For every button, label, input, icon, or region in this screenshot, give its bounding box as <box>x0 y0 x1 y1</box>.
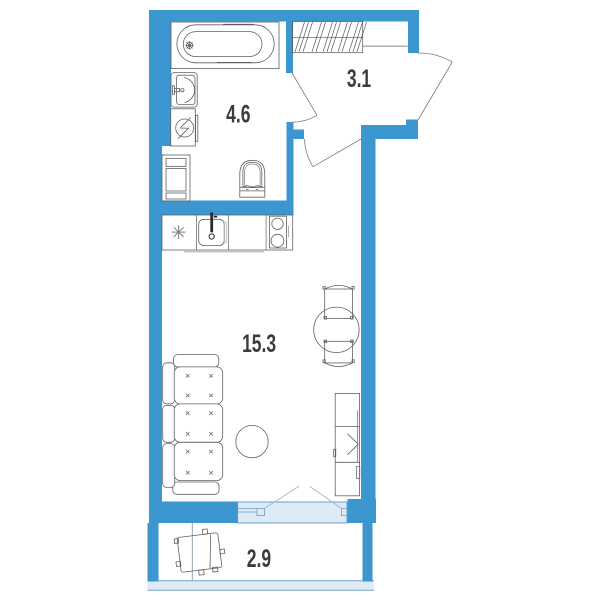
svg-text:4.6: 4.6 <box>226 99 250 128</box>
svg-text:15.3: 15.3 <box>242 329 276 358</box>
svg-text:3.1: 3.1 <box>347 64 371 93</box>
svg-text:2.9: 2.9 <box>247 544 271 573</box>
